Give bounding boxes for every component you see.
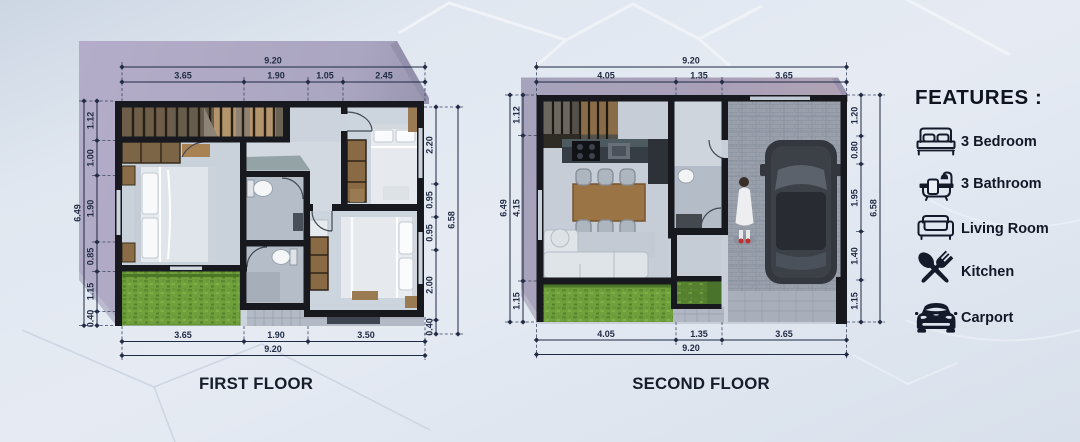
svg-text:1.12: 1.12 xyxy=(86,112,96,130)
svg-text:4.15: 4.15 xyxy=(512,199,522,217)
svg-text:9.20: 9.20 xyxy=(682,343,700,353)
svg-text:FEATURES :: FEATURES : xyxy=(915,86,1042,109)
svg-text:1.90: 1.90 xyxy=(86,200,96,218)
svg-text:0.95: 0.95 xyxy=(425,191,435,209)
svg-text:0.40: 0.40 xyxy=(425,318,435,336)
svg-text:4.05: 4.05 xyxy=(597,329,615,339)
svg-text:1.00: 1.00 xyxy=(86,149,96,167)
svg-text:1.40: 1.40 xyxy=(850,247,860,265)
svg-text:2.20: 2.20 xyxy=(425,136,435,154)
svg-text:1.90: 1.90 xyxy=(267,330,285,340)
svg-text:3.65: 3.65 xyxy=(775,329,793,339)
svg-text:0.40: 0.40 xyxy=(86,310,96,328)
svg-text:6.58: 6.58 xyxy=(447,211,457,229)
svg-text:Carport: Carport xyxy=(961,310,1014,326)
svg-text:1.95: 1.95 xyxy=(850,189,860,207)
svg-text:9.20: 9.20 xyxy=(682,56,700,66)
svg-text:3.65: 3.65 xyxy=(174,71,192,81)
svg-text:6.49: 6.49 xyxy=(499,199,509,217)
svg-text:9.20: 9.20 xyxy=(264,344,282,354)
svg-text:3.65: 3.65 xyxy=(174,330,192,340)
svg-text:1.15: 1.15 xyxy=(86,283,96,301)
svg-text:3.65: 3.65 xyxy=(775,71,793,81)
svg-text:Living Room: Living Room xyxy=(961,221,1049,237)
svg-text:1.35: 1.35 xyxy=(690,329,708,339)
svg-text:2.00: 2.00 xyxy=(425,276,435,294)
svg-text:FIRST FLOOR: FIRST FLOOR xyxy=(199,374,313,393)
svg-text:1.15: 1.15 xyxy=(850,292,860,310)
svg-text:9.20: 9.20 xyxy=(264,56,282,66)
svg-text:0.95: 0.95 xyxy=(425,224,435,242)
svg-text:6.49: 6.49 xyxy=(73,204,83,222)
svg-text:1.35: 1.35 xyxy=(690,71,708,81)
svg-text:1.15: 1.15 xyxy=(512,292,522,310)
svg-text:0.85: 0.85 xyxy=(86,248,96,266)
svg-text:3.50: 3.50 xyxy=(357,330,375,340)
svg-text:3 Bedroom: 3 Bedroom xyxy=(961,134,1037,150)
svg-text:Kitchen: Kitchen xyxy=(961,264,1014,280)
svg-text:1.90: 1.90 xyxy=(267,71,285,81)
svg-text:3 Bathroom: 3 Bathroom xyxy=(961,176,1042,192)
svg-text:4.05: 4.05 xyxy=(597,71,615,81)
svg-text:1.05: 1.05 xyxy=(316,71,334,81)
svg-text:SECOND FLOOR: SECOND FLOOR xyxy=(632,374,770,393)
svg-text:1.12: 1.12 xyxy=(512,106,522,124)
svg-text:6.58: 6.58 xyxy=(869,199,879,217)
svg-text:2.45: 2.45 xyxy=(375,71,393,81)
svg-text:0.80: 0.80 xyxy=(850,141,860,159)
svg-text:1.20: 1.20 xyxy=(850,107,860,125)
